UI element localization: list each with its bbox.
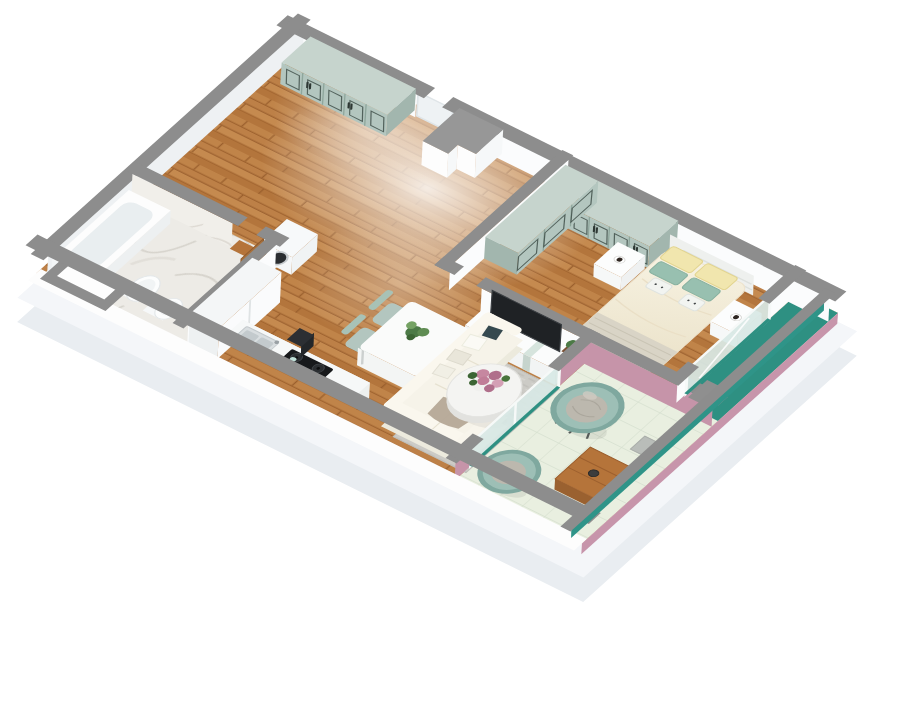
floorplan-svg — [0, 0, 900, 708]
floorplan-render — [0, 0, 900, 708]
door-stub-top — [445, 264, 454, 269]
strip-wall-top-2 — [678, 369, 689, 379]
apartment — [0, 12, 900, 602]
